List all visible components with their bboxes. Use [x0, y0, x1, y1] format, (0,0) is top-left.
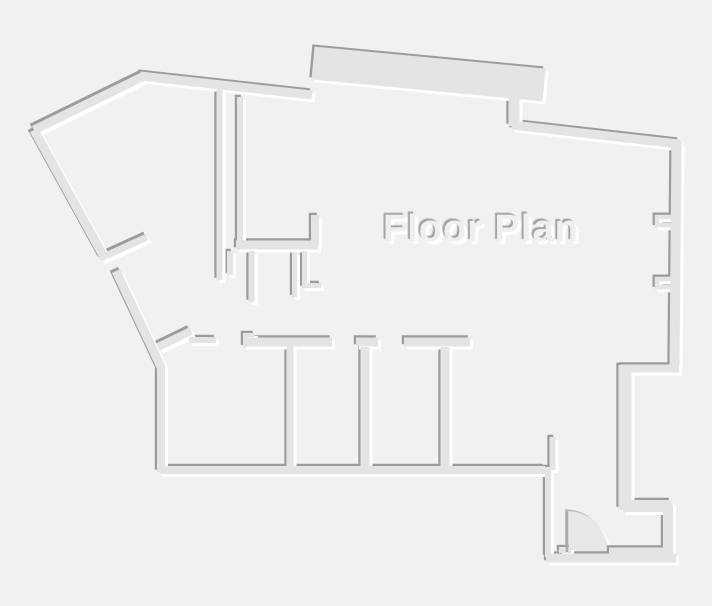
floor-plan-stage: Floor Plan — [0, 0, 712, 606]
wall-fill-layer — [34, 63, 679, 558]
door-swing-icon — [565, 509, 610, 554]
door-swing-fill — [567, 511, 608, 552]
floor-plan-title: Floor Plan — [383, 210, 579, 248]
floorplan-svg — [0, 0, 712, 606]
